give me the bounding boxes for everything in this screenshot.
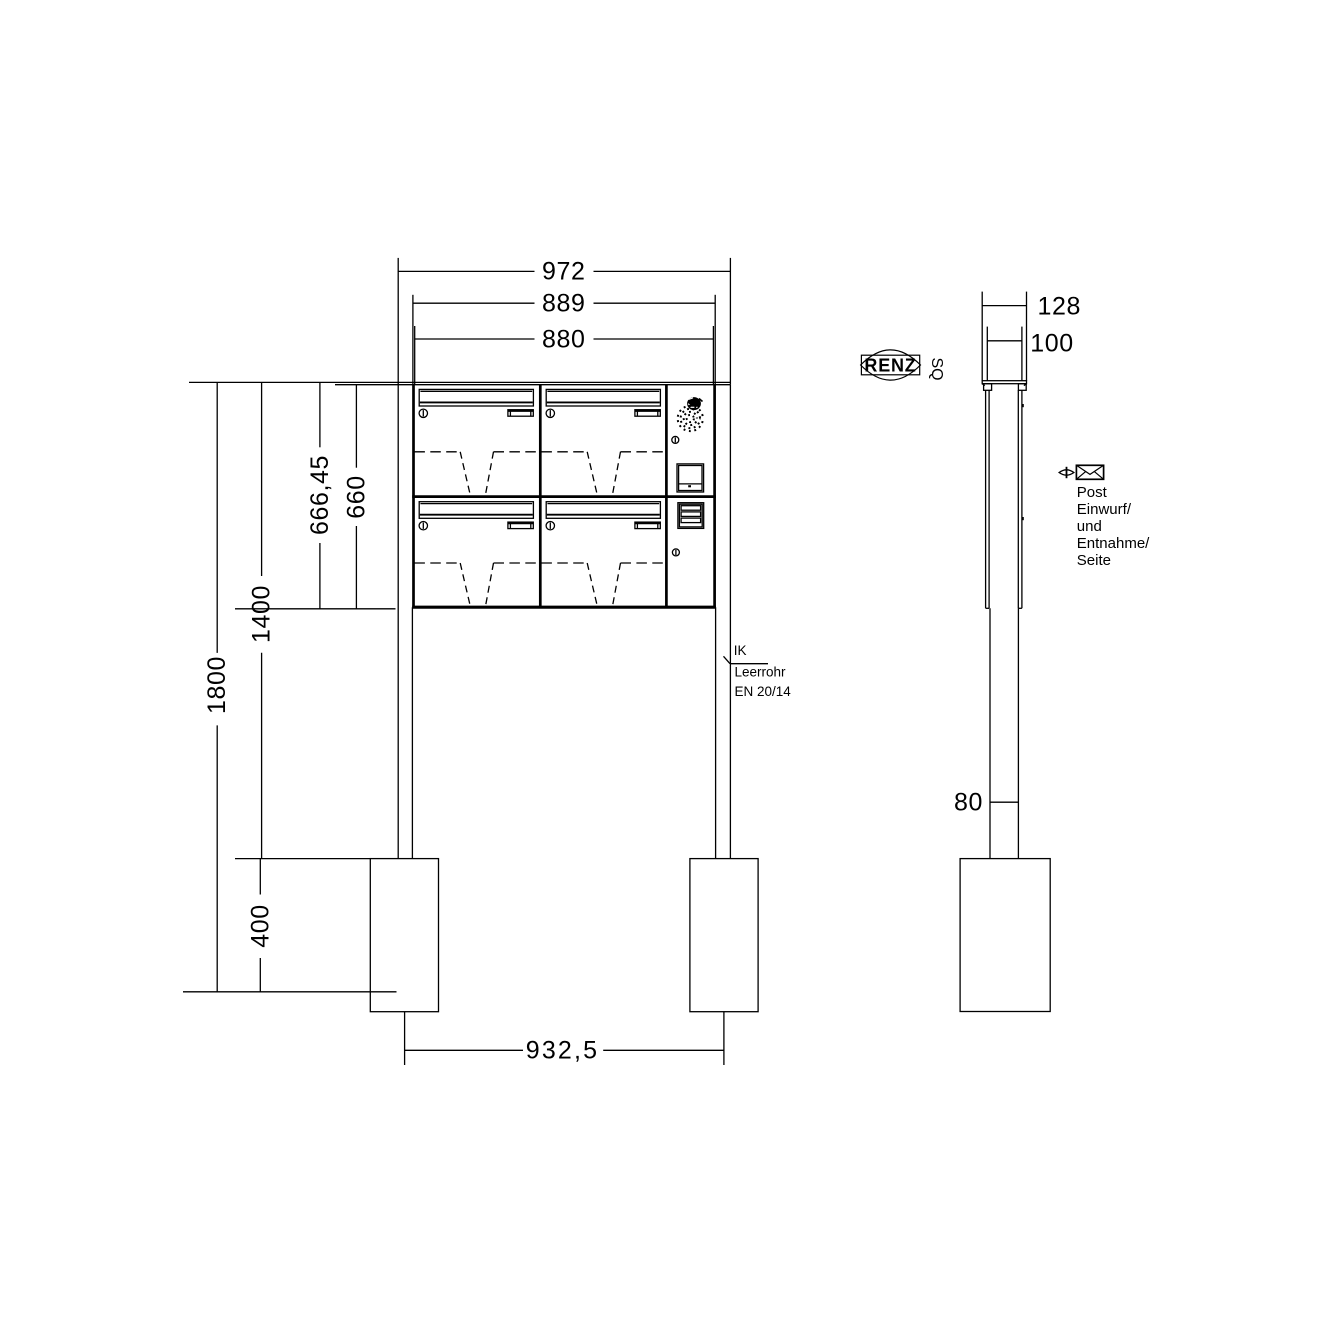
svg-text:666,45: 666,45: [306, 455, 334, 535]
svg-text:SQ: SQ: [928, 357, 945, 380]
svg-text:Entnahme/: Entnahme/: [1077, 535, 1150, 552]
svg-text:1400: 1400: [248, 585, 276, 643]
svg-text:EN 20/14: EN 20/14: [735, 684, 792, 699]
svg-text:128: 128: [1038, 293, 1082, 321]
svg-text:IK: IK: [734, 643, 747, 658]
svg-text:889: 889: [542, 290, 586, 318]
svg-text:Einwurf/: Einwurf/: [1077, 501, 1132, 518]
svg-text:Post: Post: [1077, 484, 1108, 501]
svg-text:972: 972: [542, 258, 586, 286]
svg-text:RENZ: RENZ: [864, 355, 916, 375]
svg-text:Leerrohr: Leerrohr: [735, 664, 787, 679]
svg-text:1800: 1800: [203, 656, 231, 714]
svg-text:660: 660: [342, 475, 370, 519]
svg-text:880: 880: [542, 325, 586, 353]
svg-text:932,5: 932,5: [526, 1037, 600, 1065]
svg-text:Seite: Seite: [1077, 552, 1111, 569]
svg-text:80: 80: [954, 789, 983, 817]
svg-text:400: 400: [246, 904, 274, 948]
svg-text:100: 100: [1030, 329, 1074, 357]
svg-text:und: und: [1077, 518, 1102, 535]
